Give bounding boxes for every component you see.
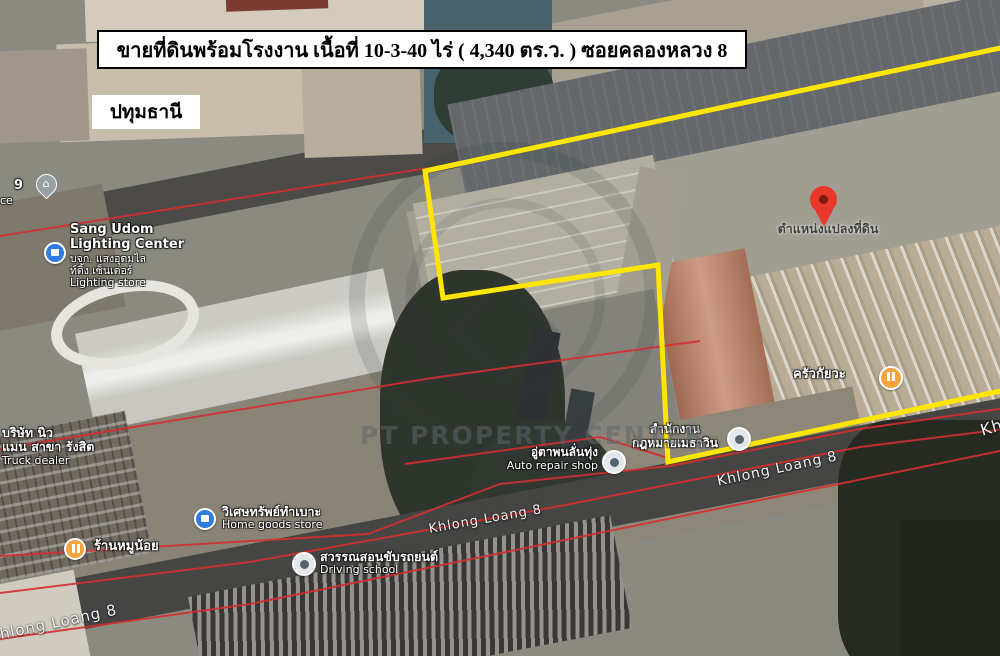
listing-title-banner: ขายที่ดินพร้อมโรงงาน เนื้อที่ 10-3-40 ไร… — [97, 30, 747, 69]
restaurant-pin-icon[interactable] — [64, 538, 86, 560]
poi-category: Home goods store — [222, 519, 322, 532]
satellite-map: 9 ce ⌂ Sang Udom Lighting Center บจก. แส… — [0, 0, 1000, 656]
poi-thai-line: แมน สาขา รังสิต — [2, 440, 94, 454]
trees-bottom-right-2 — [900, 520, 1000, 656]
poi-moo-noi[interactable]: ร้านหมูน้อย — [94, 540, 159, 555]
land-plot-caption: ตำแหน่งแปลงที่ดิน — [762, 219, 894, 239]
poi-thai-line: บจก. แสงอุดมไล — [70, 253, 184, 265]
poi-edge-partial: ce — [0, 195, 13, 208]
generic-poi-dot-icon[interactable] — [292, 552, 316, 576]
poi-krua-restaurant[interactable]: ครัวกัยวะ — [793, 368, 846, 383]
shopping-pin-icon[interactable] — [44, 242, 66, 264]
generic-poi-dot-icon[interactable] — [727, 427, 751, 451]
poi-name-line: Lighting Center — [70, 238, 184, 253]
poi-sang-udom[interactable]: Sang Udom Lighting Center บจก. แสงอุดมไล… — [70, 223, 184, 290]
shopping-pin-icon[interactable] — [194, 508, 216, 530]
watermark-text: PT PROPERTY CENTER — [360, 421, 706, 450]
poi-truck-dealer[interactable]: บริษัท นิว แมน สาขา รังสิต Truck dealer — [2, 426, 94, 467]
province-label: ปทุมธานี — [92, 95, 200, 129]
poi-home-goods[interactable]: วิเศษทรัพย์ทำเบาะ Home goods store — [222, 505, 322, 532]
poi-category: Auto repair shop — [492, 460, 598, 473]
poi-name-line: Sang Udom — [70, 223, 184, 238]
poi-category: Lighting store — [70, 277, 184, 290]
roof-top-left-c — [0, 48, 90, 143]
pin-hole — [819, 195, 828, 204]
restaurant-pin-icon[interactable] — [879, 366, 903, 390]
poi-edge-number: 9 — [14, 179, 23, 194]
poi-category: Driving school — [320, 564, 438, 577]
generic-poi-dot-icon[interactable] — [602, 450, 626, 474]
poi-driving-school[interactable]: สวรรณสอนขับรถยนต์ Driving school — [320, 550, 438, 577]
roof-top-left-d — [301, 56, 422, 158]
poi-category: Truck dealer — [2, 455, 94, 468]
